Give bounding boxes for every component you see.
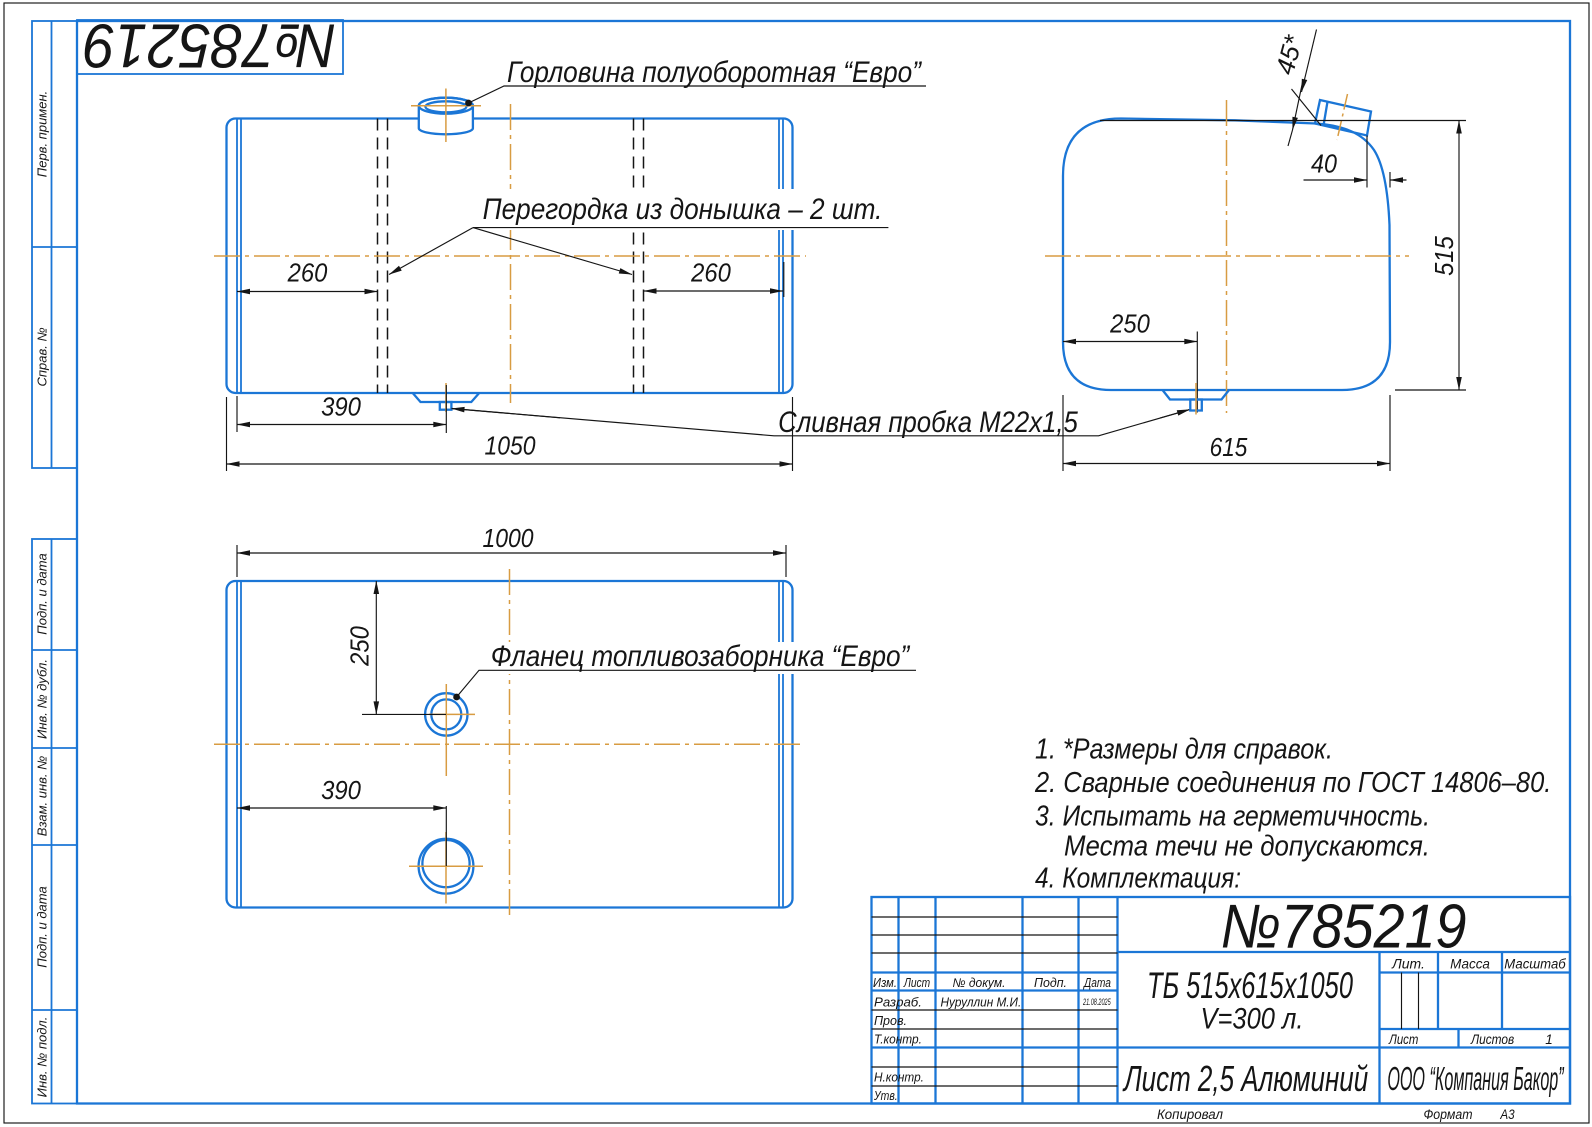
svg-text:Утв.: Утв. [873, 1090, 898, 1103]
svg-text:21.08.2025: 21.08.2025 [1082, 996, 1111, 1007]
svg-text:А3: А3 [1499, 1106, 1515, 1122]
svg-text:Перв. примен.: Перв. примен. [35, 91, 50, 177]
svg-text:Перегордка из донышка – 2 шт.: Перегордка из донышка – 2 шт. [483, 192, 883, 225]
svg-text:ООО “Компания Бакор”: ООО “Компания Бакор” [1387, 1060, 1564, 1098]
svg-text:Взам. инв. №: Взам. инв. № [35, 756, 50, 836]
svg-text:3. Испытать на герметичность.: 3. Испытать на герметичность. [1035, 800, 1430, 832]
svg-text:Листов: Листов [1470, 1031, 1514, 1047]
svg-text:ТБ 515х615х1050: ТБ 515х615х1050 [1147, 964, 1353, 1006]
svg-text:Изм.: Изм. [873, 975, 897, 990]
svg-text:Справ. №: Справ. № [35, 327, 50, 386]
svg-text:515: 515 [1430, 236, 1459, 276]
svg-text:390: 390 [321, 776, 361, 805]
svg-text:Сливная пробка М22х1,5: Сливная пробка М22х1,5 [778, 405, 1078, 438]
svg-text:Подп. и дата: Подп. и дата [35, 553, 50, 634]
svg-text:Т.контр.: Т.контр. [874, 1032, 922, 1046]
svg-text:№ докум.: № докум. [952, 976, 1005, 990]
svg-text:Н.контр.: Н.контр. [874, 1070, 924, 1084]
svg-text:1. *Размеры для справок.: 1. *Размеры для справок. [1035, 733, 1333, 765]
svg-text:Пров.: Пров. [874, 1014, 907, 1028]
svg-text:№785219: №785219 [84, 11, 337, 81]
svg-text:V=300 л.: V=300 л. [1201, 1002, 1304, 1035]
svg-text:Дата: Дата [1082, 977, 1111, 990]
svg-text:Копировал: Копировал [1157, 1107, 1223, 1122]
svg-text:Лист: Лист [1388, 1032, 1418, 1047]
svg-text:1000: 1000 [482, 525, 533, 554]
svg-text:Масштаб: Масштаб [1504, 956, 1567, 971]
svg-text:260: 260 [287, 259, 328, 288]
svg-text:Нуруллин М.И.: Нуруллин М.И. [941, 995, 1022, 1009]
svg-text:Места течи не допускаются.: Места течи не допускаются. [1064, 829, 1430, 861]
svg-text:Горловина полуоборотная “Евро”: Горловина полуоборотная “Евро” [507, 55, 922, 88]
svg-text:Формат: Формат [1423, 1106, 1472, 1122]
svg-text:1: 1 [1545, 1032, 1553, 1047]
svg-text:615: 615 [1210, 434, 1248, 463]
svg-text:2. Сварные соединения по ГОСТ: 2. Сварные соединения по ГОСТ 14806–80. [1034, 767, 1551, 799]
svg-text:Инв. № подл.: Инв. № подл. [35, 1017, 50, 1098]
svg-text:Подп.: Подп. [1034, 976, 1067, 990]
svg-text:Фланец топливозаборника “Евро”: Фланец топливозаборника “Евро” [491, 639, 911, 672]
svg-text:260: 260 [690, 259, 731, 288]
svg-text:№785219: №785219 [1221, 893, 1467, 961]
svg-text:1050: 1050 [484, 432, 535, 461]
svg-text:250: 250 [1109, 310, 1150, 339]
svg-text:Лист 2,5 Алюминий: Лист 2,5 Алюминий [1122, 1059, 1368, 1099]
svg-text:4. Комплектация:: 4. Комплектация: [1035, 862, 1241, 894]
svg-text:Лист: Лист [903, 977, 930, 990]
svg-text:Подп. и дата: Подп. и дата [35, 886, 50, 967]
svg-text:Разраб.: Разраб. [874, 995, 922, 1010]
svg-text:250: 250 [346, 626, 375, 667]
svg-text:Лит.: Лит. [1391, 956, 1425, 972]
svg-text:Инв. № дубл.: Инв. № дубл. [35, 659, 50, 739]
svg-text:40: 40 [1311, 150, 1337, 178]
svg-text:Масса: Масса [1450, 956, 1490, 971]
svg-text:390: 390 [321, 393, 361, 422]
